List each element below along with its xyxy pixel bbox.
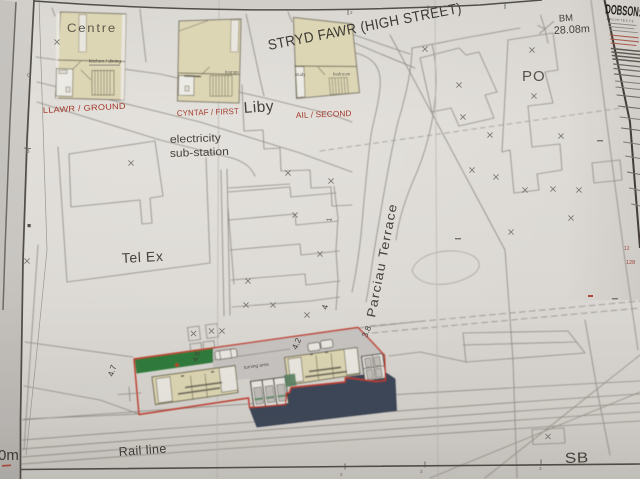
svg-text:bedroom: bedroom [333, 72, 351, 77]
svg-text:sub-station: sub-station [170, 146, 229, 160]
svg-text:study: study [295, 72, 306, 77]
svg-text:lounge: lounge [225, 70, 239, 75]
svg-text:kitchen / dining: kitchen / dining [89, 59, 121, 65]
svg-text:Tel Ex: Tel Ex [121, 248, 164, 266]
svg-text:Centre: Centre [67, 21, 117, 35]
svg-text:electricity: electricity [170, 132, 222, 146]
svg-text:C: C [27, 73, 31, 79]
svg-text:B: B [26, 149, 30, 155]
svg-text:Liby: Liby [243, 98, 275, 117]
svg-text:PO: PO [522, 68, 546, 85]
